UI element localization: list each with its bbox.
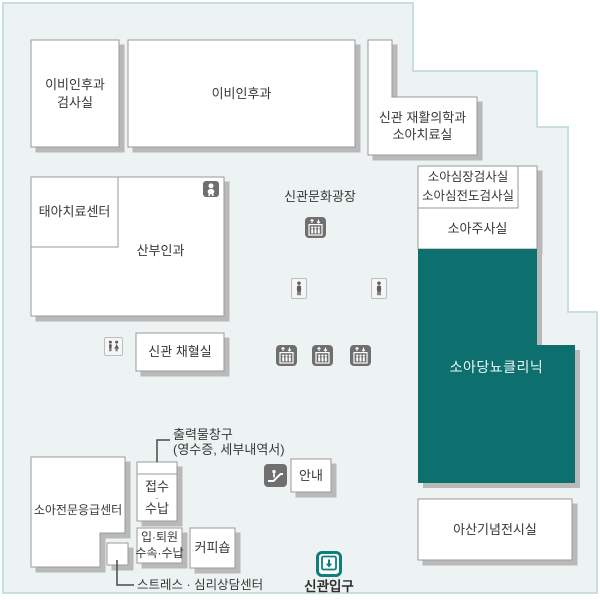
elevator-icon <box>305 217 326 238</box>
ent-label: 이비인후과 <box>212 85 272 102</box>
room-label-reception: 접수 · 수납 <box>137 475 177 521</box>
room-label-diabetes-clinic: 소아당뇨클리닉 <box>418 347 575 387</box>
emergency-center-label: 소아전문응급센터 <box>34 503 122 519</box>
ent-lab-line2: 검사실 <box>57 94 93 111</box>
person-icon <box>291 278 307 299</box>
rehab-line2: 소아치료실 <box>393 126 453 143</box>
room-label-injection: 소아주사실 <box>418 208 537 249</box>
blood-lab-label: 신관 채혈실 <box>148 343 211 360</box>
room-label-emergency-center: 소아전문응급센터 <box>29 501 127 521</box>
elevator-icon <box>312 345 333 366</box>
printout-line2: (영수증, 세부내역서) <box>173 442 285 457</box>
exhibit-hall-label: 아산기념전시실 <box>453 521 537 538</box>
room-label-obgyn: 산부인과 <box>108 241 213 261</box>
cardiac-lab-line1: 소아심장검사실 <box>428 168 509 187</box>
room-label-coffee-shop: 커피숍 <box>190 528 235 568</box>
room-label-ent: 이비인후과 <box>128 40 355 147</box>
room-label-fetal-center: 태아치료센터 <box>31 177 118 247</box>
entrance-text: 신관입구 <box>304 578 354 596</box>
stress-center-label: 스트레스 · 심리상담센터 <box>137 577 263 594</box>
room-label-info-desk: 안내 <box>291 459 331 492</box>
room-label-blood-lab: 신관 채혈실 <box>136 333 224 371</box>
reception-line2: 수납 <box>145 500 169 517</box>
printout-line1: 출력물창구 <box>173 427 233 442</box>
elevator-icon <box>350 345 371 366</box>
admission-line1: 입·퇴원 <box>141 530 178 546</box>
escalator-icon <box>264 464 287 487</box>
info-desk-label: 안내 <box>299 467 323 484</box>
room-label-cardiac-lab: 소아심장검사실 소아심전도검사실 <box>418 166 518 208</box>
floor-map: 이비인후과 검사실 이비인후과 신관 재활의학과 소아치료실 태아치료센터 산부… <box>0 0 600 600</box>
person-icon <box>371 278 387 299</box>
room-label-ent-lab: 이비인후과 검사실 <box>31 40 119 147</box>
restroom-icon <box>104 337 123 356</box>
coffee-shop-label: 커피숍 <box>195 539 231 556</box>
obgyn-label: 산부인과 <box>137 242 185 259</box>
admission-line2: 수속·수납 <box>135 546 183 562</box>
rehab-line1: 신관 재활의학과 <box>379 109 466 126</box>
baby-care-icon <box>203 181 219 197</box>
injection-label: 소아주사실 <box>448 220 508 237</box>
room-label-exhibit-hall: 아산기념전시실 <box>418 499 572 560</box>
entrance-label: 신관입구 <box>295 578 363 595</box>
entrance-icon <box>316 551 342 577</box>
room-label-rehab: 신관 재활의학과 소아치료실 <box>368 97 477 155</box>
diabetes-clinic-label: 소아당뇨클리닉 <box>450 358 544 376</box>
elevator-icon <box>276 345 297 366</box>
plaza-text: 신관문화광장 <box>284 188 356 205</box>
printout-callout: 출력물창구 (영수증, 세부내역서) <box>173 426 333 458</box>
ent-lab-line1: 이비인후과 <box>45 76 105 93</box>
plaza-label: 신관문화광장 <box>268 188 372 206</box>
room-label-admission: 입·퇴원 수속·수납 <box>133 530 186 562</box>
fetal-center-label: 태아치료센터 <box>39 203 111 220</box>
cardiac-lab-line2: 소아심전도검사실 <box>422 187 514 206</box>
stress-center-callout: 스트레스 · 심리상담센터 <box>137 577 292 593</box>
